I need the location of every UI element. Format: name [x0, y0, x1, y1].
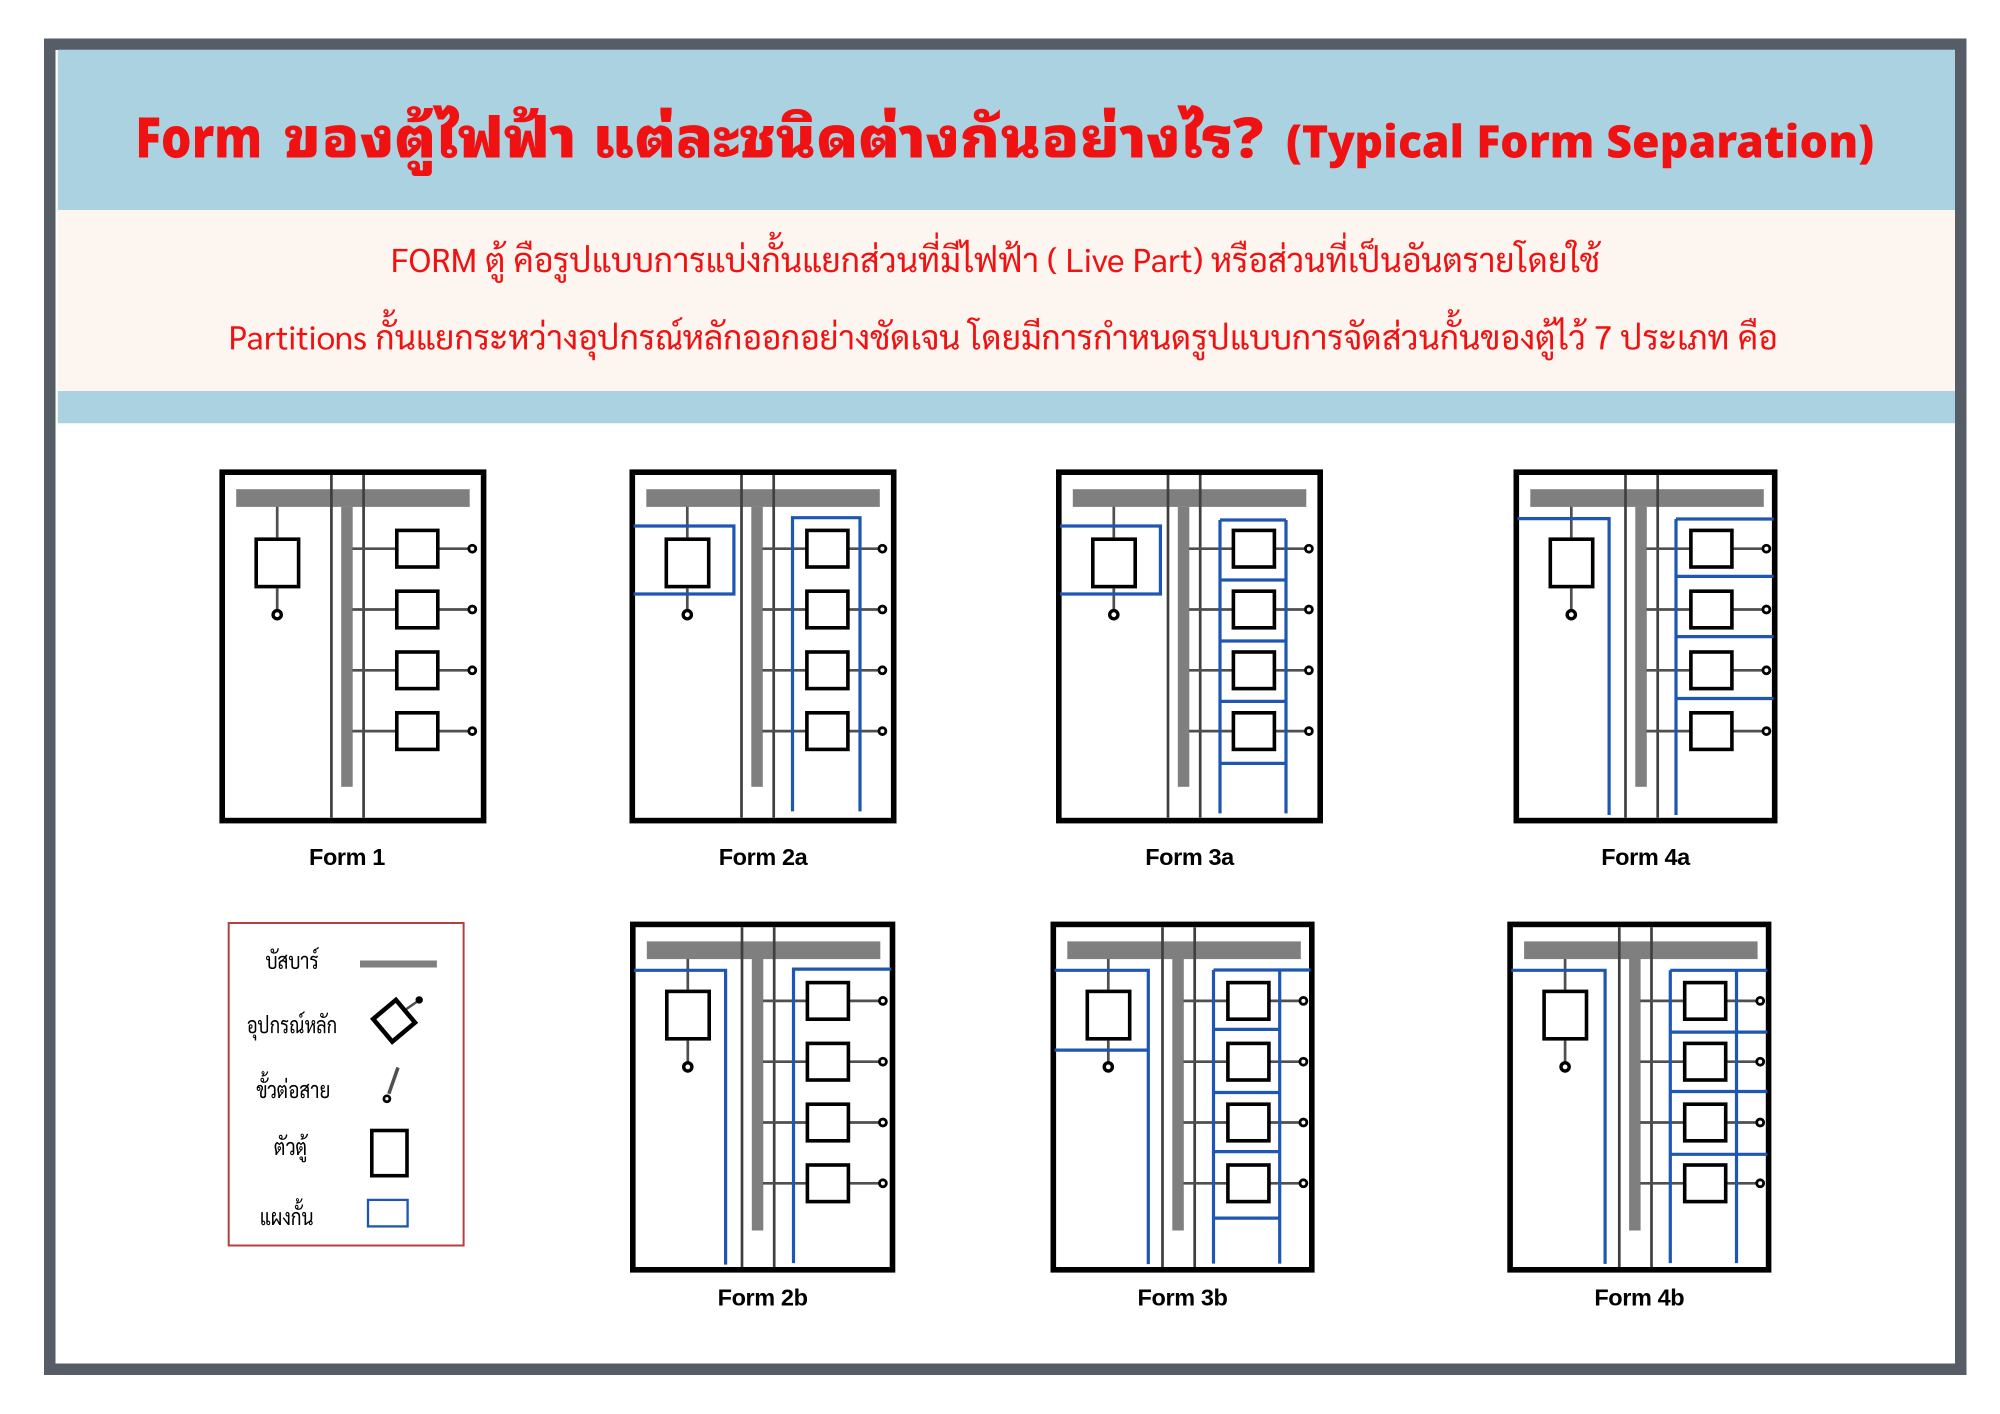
svg-text:Form 1: Form 1 — [309, 844, 385, 870]
svg-text:Form 3a: Form 3a — [1145, 844, 1235, 870]
svg-text:Form 4b: Form 4b — [1594, 1284, 1684, 1310]
svg-text:Form 3b: Form 3b — [1138, 1284, 1228, 1310]
svg-text:Form 4a: Form 4a — [1601, 844, 1691, 870]
svg-text:Form 2b: Form 2b — [718, 1284, 808, 1310]
svg-text:Form 2a: Form 2a — [719, 844, 809, 870]
